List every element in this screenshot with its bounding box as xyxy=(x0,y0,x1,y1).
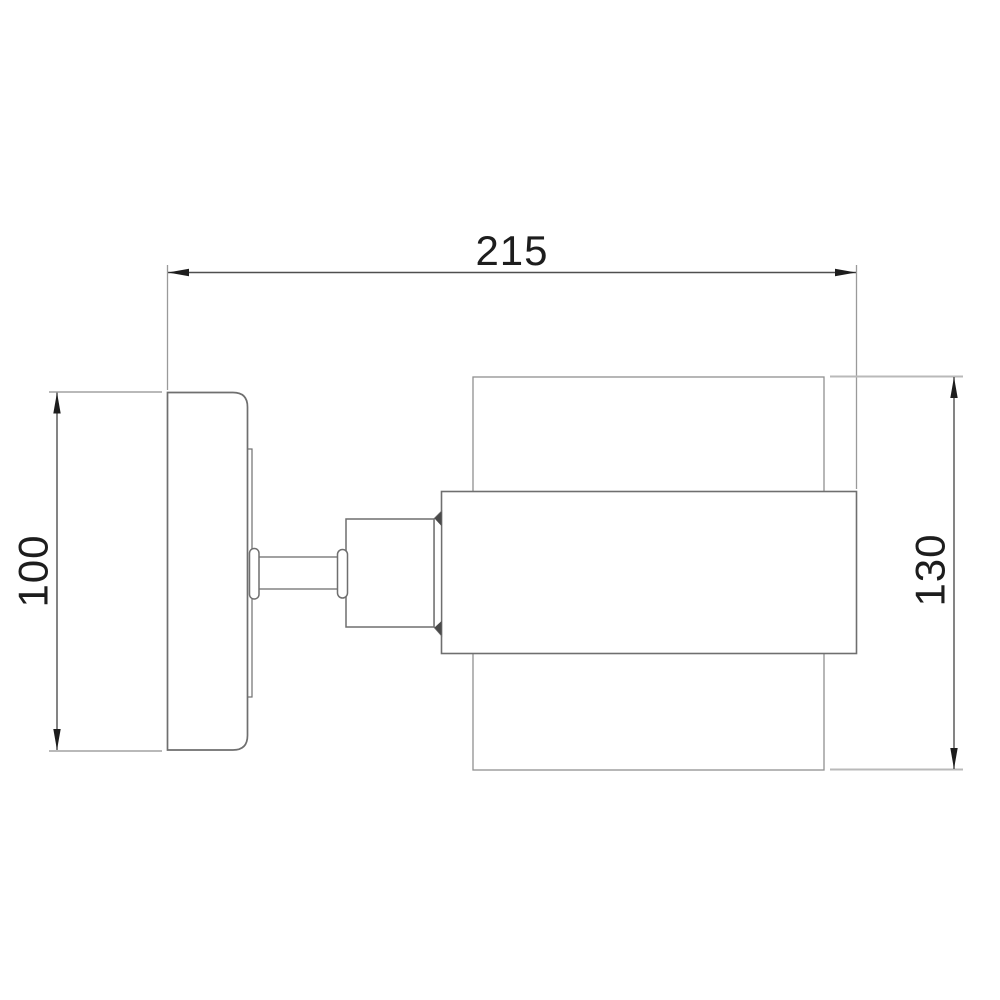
holder-cone xyxy=(434,512,442,636)
dimension-label-shade-height: 130 xyxy=(907,533,954,606)
arrowhead-top xyxy=(53,393,60,414)
lamp-holder xyxy=(346,519,434,627)
arrowhead-top xyxy=(950,377,957,398)
arrowhead-right xyxy=(835,269,856,276)
shade-band xyxy=(442,492,857,654)
dimension-backplate-height: 100 xyxy=(10,392,163,751)
arrowhead-left xyxy=(168,269,189,276)
dimension-label-overall-depth: 215 xyxy=(475,227,548,274)
pivot-pill xyxy=(250,549,260,600)
dimension-label-backplate-height: 100 xyxy=(10,534,57,607)
wall-backplate xyxy=(168,393,248,751)
arrowhead-bottom xyxy=(53,729,60,750)
arrowhead-bottom xyxy=(950,748,957,769)
arm-pill xyxy=(338,550,348,599)
drawing-page: 215 100 130 xyxy=(0,0,1000,1000)
technical-drawing-canvas: 215 100 130 xyxy=(0,0,1000,1000)
arm xyxy=(257,557,341,589)
fixture-group xyxy=(168,377,857,770)
